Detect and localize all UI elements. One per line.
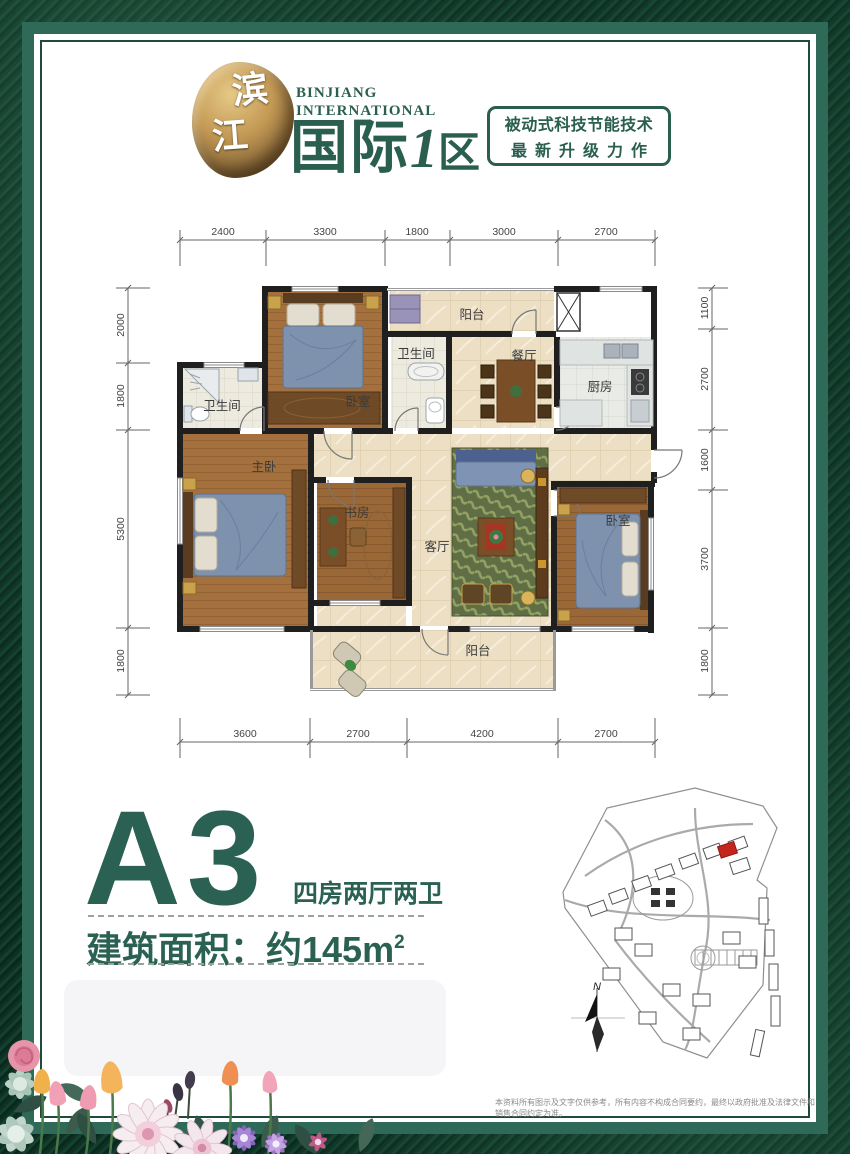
dim-right-0: 1100 — [699, 297, 711, 320]
north-label: N — [593, 981, 601, 993]
logo-stone-char-2: 江 — [211, 117, 249, 155]
dim-bottom-1: 2700 — [346, 728, 370, 740]
flower-decoration — [0, 984, 480, 1154]
room-label-bath-left: 卫生间 — [203, 399, 241, 413]
room-label-bedroom-top: 卧室 — [345, 394, 370, 409]
room-label-study: 书房 — [344, 505, 369, 520]
dim-right-3: 3700 — [699, 547, 711, 571]
dim-top-4: 2700 — [594, 226, 618, 238]
dim-top-2: 1800 — [405, 226, 429, 238]
unit-area-sup: 2 — [394, 932, 405, 953]
elevator-shaft — [557, 293, 580, 331]
unit-area: 建筑面积：约145m2 — [86, 921, 405, 973]
unit-layout: 四房两厅两卫 — [293, 874, 443, 910]
site-plan: N — [545, 780, 810, 1080]
dim-top-0: 2400 — [211, 226, 235, 238]
dim-left-0: 2000 — [115, 313, 127, 337]
room-label-master: 主卧 — [251, 460, 276, 474]
dim-left-1: 1800 — [115, 384, 127, 408]
room-label-balcony-bottom: 阳台 — [465, 643, 490, 658]
logo-stone-char-1: 滨 — [230, 70, 270, 110]
unit-name: A3 — [84, 792, 267, 926]
room-label-balcony-top: 阳台 — [459, 307, 484, 322]
room-label-dining: 餐厅 — [511, 348, 536, 363]
room-label-bath-mid: 卫生间 — [397, 347, 435, 361]
dashed-divider-bottom — [88, 963, 424, 965]
dim-top-3: 3000 — [492, 226, 516, 238]
brand-cn-qu: 区 — [438, 129, 480, 176]
dim-bottom-2: 4200 — [470, 728, 494, 740]
room-label-bedroom-right: 卧室 — [605, 513, 630, 528]
tech-badge-line2: 最新升级力作 — [503, 137, 655, 161]
floorplan-poster: 滨 江 BINJIANG INTERNATIONAL 国际1区 被动式科技节能技… — [0, 0, 850, 1154]
dim-left-2: 5300 — [115, 517, 127, 541]
dim-left-3: 1800 — [115, 649, 127, 673]
floorplan-drawing: 阳台 卫生间 卧室 卫生间 餐厅 厨房 主卧 书房 客厅 卧室 阳台 — [100, 200, 750, 775]
dahlia — [113, 1099, 232, 1154]
room-label-living: 客厅 — [424, 539, 449, 554]
north-arrow: N — [571, 981, 625, 1052]
dim-bottom-0: 3600 — [233, 728, 257, 740]
tech-badge-line1: 被动式科技节能技术 — [505, 111, 654, 135]
room-label-kitchen: 厨房 — [587, 379, 612, 394]
dim-right-4: 1800 — [699, 649, 711, 673]
dim-top-1: 3300 — [313, 226, 337, 238]
rose — [8, 1040, 40, 1072]
dim-bottom-3: 2700 — [594, 728, 618, 740]
disclaimer-text: 本资料所有图示及文字仅供参考，所有内容不构成合同要约，最终以政府批准及法律文件和… — [495, 1097, 817, 1119]
dashed-divider-top — [88, 915, 424, 917]
brand-cn-main: 国际 — [290, 115, 410, 180]
poster-content: 滨 江 BINJIANG INTERNATIONAL 国际1区 被动式科技节能技… — [0, 0, 850, 1154]
dim-right-2: 1600 — [699, 448, 711, 472]
dim-right-1: 2700 — [699, 367, 711, 391]
tech-badge: 被动式科技节能技术 最新升级力作 — [487, 106, 671, 166]
brand-chinese: 国际1区 — [290, 100, 480, 184]
brand-cn-one: 1 — [410, 118, 438, 180]
